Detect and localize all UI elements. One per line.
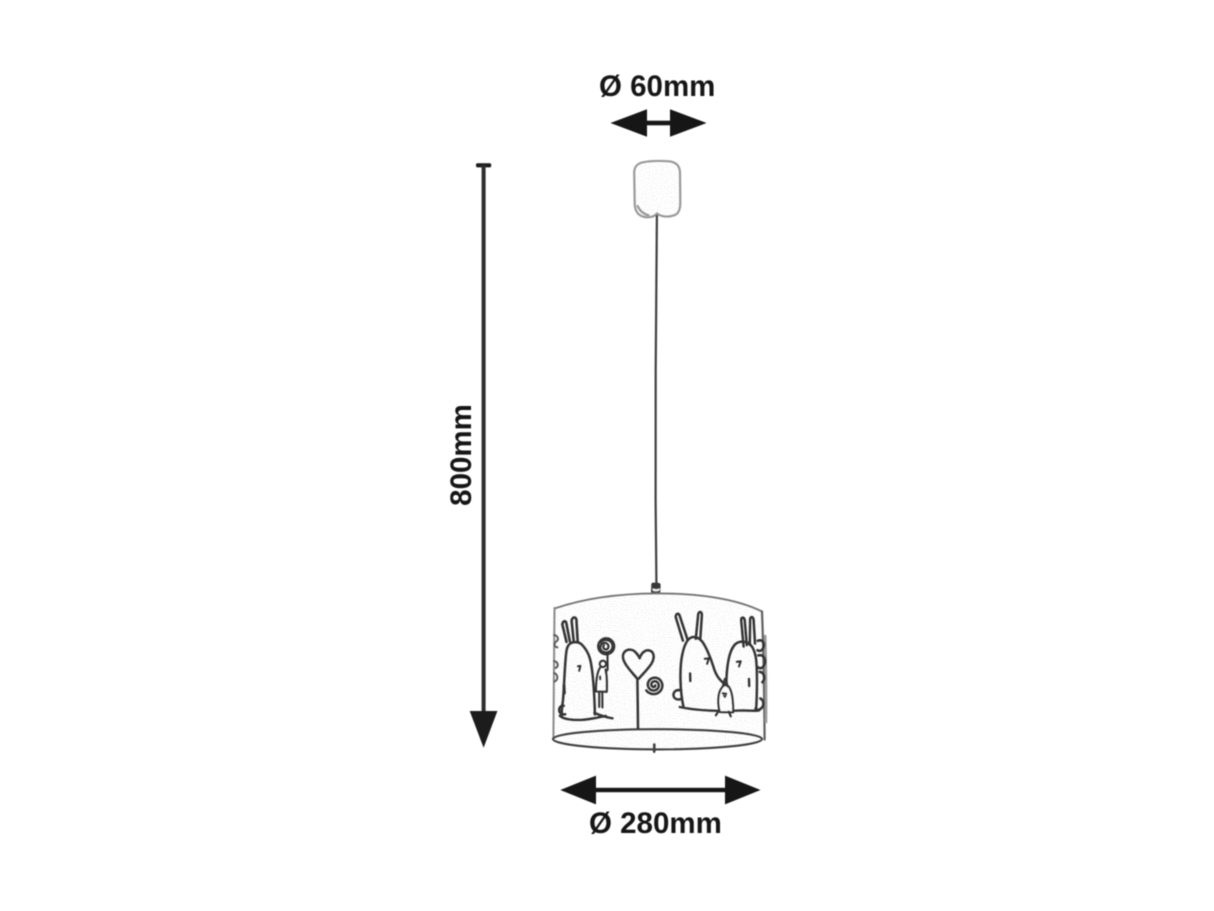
svg-text:Ø 60mm: Ø 60mm	[599, 70, 715, 103]
svg-text:800mm: 800mm	[445, 404, 478, 506]
svg-text:Ø 280mm: Ø 280mm	[589, 807, 722, 840]
